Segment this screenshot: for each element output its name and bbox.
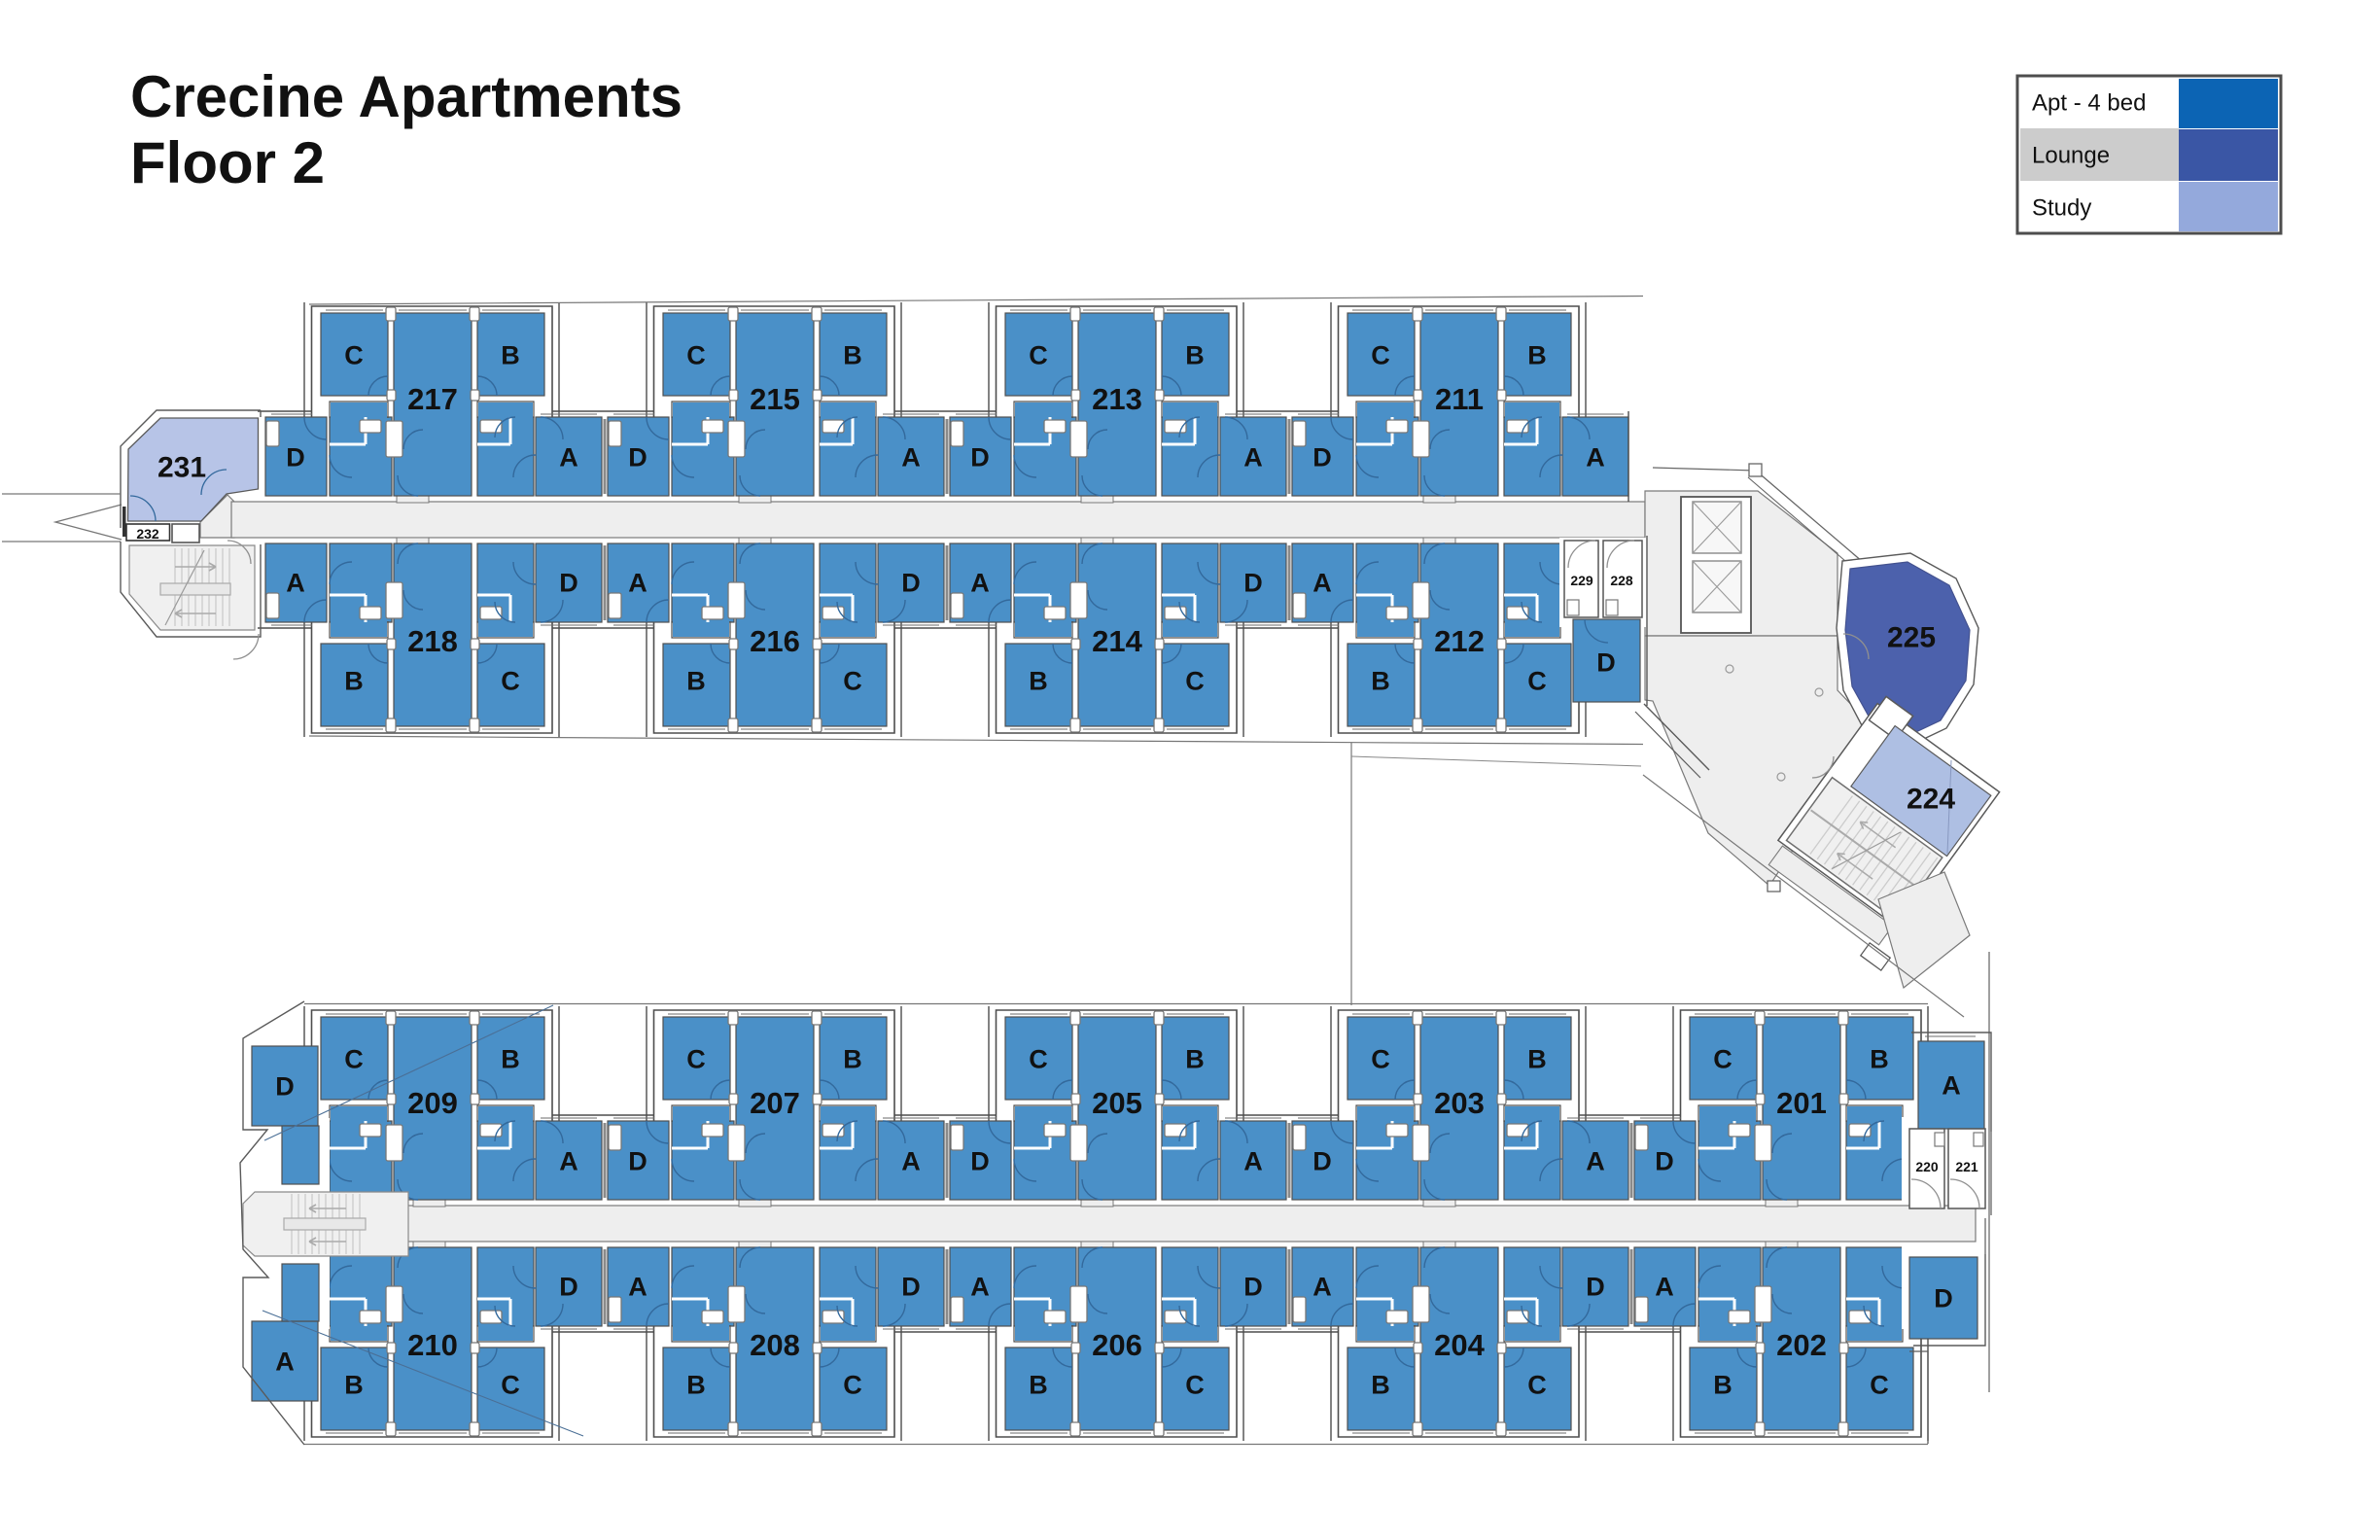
svg-text:213: 213 <box>1092 382 1142 416</box>
svg-text:232: 232 <box>136 526 159 542</box>
svg-text:D: D <box>970 442 990 472</box>
svg-text:A: A <box>628 1272 647 1301</box>
svg-text:C: C <box>1029 340 1048 369</box>
svg-text:C: C <box>686 340 706 369</box>
svg-text:C: C <box>843 1370 862 1399</box>
svg-text:224: 224 <box>1907 784 1955 816</box>
svg-text:A: A <box>1655 1272 1674 1301</box>
svg-text:B: B <box>1029 1370 1048 1399</box>
svg-text:D: D <box>1312 442 1332 472</box>
svg-text:Apt - 4 bed: Apt - 4 bed <box>2032 89 2146 116</box>
svg-text:221: 221 <box>1955 1159 1978 1174</box>
svg-text:C: C <box>344 1044 364 1073</box>
svg-text:A: A <box>970 1272 990 1301</box>
svg-text:206: 206 <box>1092 1328 1142 1362</box>
svg-text:B: B <box>1527 1044 1547 1073</box>
svg-text:Study: Study <box>2032 194 2091 221</box>
svg-text:225: 225 <box>1887 622 1936 654</box>
svg-text:229: 229 <box>1570 573 1593 588</box>
svg-text:A: A <box>1942 1070 1961 1100</box>
svg-text:C: C <box>344 340 364 369</box>
svg-text:D: D <box>559 568 578 597</box>
svg-text:C: C <box>1527 1370 1547 1399</box>
svg-text:218: 218 <box>407 624 458 658</box>
svg-text:202: 202 <box>1776 1328 1827 1362</box>
svg-text:A: A <box>901 442 921 472</box>
svg-text:A: A <box>1312 568 1332 597</box>
svg-text:C: C <box>1713 1044 1732 1073</box>
svg-text:D: D <box>628 442 647 472</box>
svg-text:A: A <box>1312 1272 1332 1301</box>
svg-text:212: 212 <box>1434 624 1485 658</box>
svg-text:B: B <box>1527 340 1547 369</box>
svg-text:215: 215 <box>750 382 800 416</box>
svg-text:B: B <box>1029 666 1048 695</box>
svg-text:D: D <box>1596 647 1616 677</box>
svg-text:B: B <box>501 340 520 369</box>
svg-text:204: 204 <box>1434 1328 1485 1362</box>
svg-text:C: C <box>1185 666 1205 695</box>
svg-text:D: D <box>901 568 921 597</box>
svg-text:C: C <box>1371 340 1390 369</box>
svg-text:D: D <box>1934 1283 1953 1312</box>
svg-text:210: 210 <box>407 1328 458 1362</box>
svg-text:228: 228 <box>1610 573 1633 588</box>
svg-text:B: B <box>1870 1044 1889 1073</box>
svg-text:A: A <box>970 568 990 597</box>
svg-text:C: C <box>686 1044 706 1073</box>
svg-text:A: A <box>559 1146 578 1175</box>
svg-text:A: A <box>628 568 647 597</box>
svg-text:C: C <box>1371 1044 1390 1073</box>
svg-text:B: B <box>686 1370 706 1399</box>
svg-text:A: A <box>901 1146 921 1175</box>
svg-text:B: B <box>1713 1370 1732 1399</box>
svg-text:B: B <box>344 666 364 695</box>
svg-text:A: A <box>1243 442 1263 472</box>
svg-text:D: D <box>1312 1146 1332 1175</box>
svg-text:Crecine Apartments: Crecine Apartments <box>130 64 682 129</box>
svg-text:D: D <box>1243 1272 1263 1301</box>
svg-text:D: D <box>286 442 305 472</box>
svg-text:C: C <box>1185 1370 1205 1399</box>
svg-text:B: B <box>843 1044 862 1073</box>
svg-text:D: D <box>1655 1146 1674 1175</box>
svg-text:B: B <box>501 1044 520 1073</box>
svg-text:B: B <box>1185 1044 1205 1073</box>
svg-text:A: A <box>1243 1146 1263 1175</box>
svg-text:B: B <box>686 666 706 695</box>
svg-text:A: A <box>559 442 578 472</box>
svg-text:B: B <box>344 1370 364 1399</box>
svg-text:D: D <box>901 1272 921 1301</box>
svg-text:207: 207 <box>750 1086 800 1120</box>
svg-text:D: D <box>1586 1272 1605 1301</box>
svg-text:C: C <box>501 1370 520 1399</box>
svg-text:203: 203 <box>1434 1086 1485 1120</box>
svg-text:231: 231 <box>157 452 206 484</box>
svg-text:211: 211 <box>1435 382 1484 416</box>
svg-text:D: D <box>275 1071 295 1101</box>
svg-text:D: D <box>559 1272 578 1301</box>
svg-text:B: B <box>1371 666 1390 695</box>
svg-text:C: C <box>501 666 520 695</box>
svg-text:216: 216 <box>750 624 800 658</box>
svg-text:C: C <box>1527 666 1547 695</box>
svg-text:A: A <box>1586 1146 1605 1175</box>
svg-text:C: C <box>1029 1044 1048 1073</box>
svg-text:217: 217 <box>407 382 458 416</box>
svg-text:B: B <box>843 340 862 369</box>
svg-text:B: B <box>1371 1370 1390 1399</box>
svg-text:209: 209 <box>407 1086 458 1120</box>
svg-text:C: C <box>843 666 862 695</box>
svg-text:B: B <box>1185 340 1205 369</box>
svg-text:A: A <box>286 568 305 597</box>
svg-text:201: 201 <box>1776 1086 1827 1120</box>
svg-text:A: A <box>1586 442 1605 472</box>
svg-text:Floor 2: Floor 2 <box>130 130 325 195</box>
svg-text:D: D <box>1243 568 1263 597</box>
svg-text:205: 205 <box>1092 1086 1142 1120</box>
svg-text:208: 208 <box>750 1328 800 1362</box>
svg-text:D: D <box>970 1146 990 1175</box>
svg-text:C: C <box>1870 1370 1889 1399</box>
svg-text:214: 214 <box>1092 624 1142 658</box>
svg-text:D: D <box>628 1146 647 1175</box>
svg-text:220: 220 <box>1915 1159 1939 1174</box>
svg-text:A: A <box>275 1347 295 1376</box>
svg-text:Lounge: Lounge <box>2032 142 2110 168</box>
